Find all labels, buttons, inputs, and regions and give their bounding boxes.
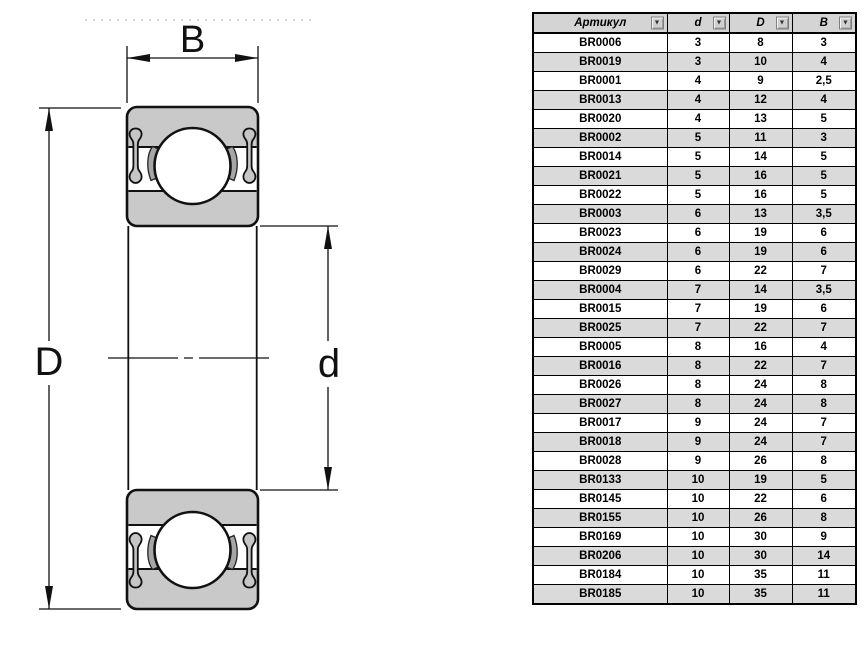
table-row: BR00157196 (533, 300, 856, 319)
arrowhead-right (235, 54, 258, 62)
table-row: BR00289268 (533, 452, 856, 471)
table-cell: 8 (792, 395, 856, 414)
column-header-label: d (694, 17, 701, 29)
table-cell: 8 (667, 357, 729, 376)
page: B D d Артик (0, 0, 868, 650)
table-cell: 26 (729, 452, 792, 471)
table-cell: BR0029 (533, 262, 667, 281)
table-cell: 24 (729, 376, 792, 395)
table-cell: BR0002 (533, 129, 667, 148)
table-cell: 7 (792, 414, 856, 433)
table-cell: 2,5 (792, 72, 856, 91)
table-row: BR00134124 (533, 91, 856, 110)
table-cell: BR0185 (533, 585, 667, 605)
table-cell: 5 (792, 110, 856, 129)
column-header-label: Артикул (574, 17, 626, 29)
bearing-drawing: B D d (0, 0, 530, 650)
column-header-label: D (756, 17, 764, 29)
table-cell: 5 (792, 148, 856, 167)
table-cell: BR0184 (533, 566, 667, 585)
table-cell: 3,5 (792, 205, 856, 224)
table-cell: BR0020 (533, 110, 667, 129)
table-cell: 30 (729, 528, 792, 547)
table-cell: 6 (667, 262, 729, 281)
table-row: BR016910309 (533, 528, 856, 547)
column-header-label: B (820, 17, 828, 29)
table-cell: BR0133 (533, 471, 667, 490)
column-header-d: d ▼ (667, 13, 729, 33)
bearing-section-top (127, 107, 258, 226)
table-cell: 8 (729, 33, 792, 53)
table-cell: BR0022 (533, 186, 667, 205)
table-cell: BR0014 (533, 148, 667, 167)
table-cell: BR0023 (533, 224, 667, 243)
table-row: BR00193104 (533, 53, 856, 72)
table-cell: 4 (667, 110, 729, 129)
table-cell: 11 (792, 566, 856, 585)
table-cell: 7 (792, 262, 856, 281)
table-cell: 10 (667, 490, 729, 509)
table-row: BR00215165 (533, 167, 856, 186)
header-row: Артикул ▼ d ▼ D ▼ B ▼ (533, 13, 856, 33)
table-cell: 9 (667, 433, 729, 452)
table-cell: 13 (729, 205, 792, 224)
table-row: BR013310195 (533, 471, 856, 490)
table-row: BR0006383 (533, 33, 856, 53)
table-cell: 26 (729, 509, 792, 528)
table-cell: 6 (667, 224, 729, 243)
table-cell: 6 (667, 243, 729, 262)
table-row: BR0001492,5 (533, 72, 856, 91)
table-row: BR00189247 (533, 433, 856, 452)
bearing-spec-table: Артикул ▼ d ▼ D ▼ B ▼ BR0006383BR0019310… (532, 12, 857, 605)
table-cell: BR0169 (533, 528, 667, 547)
arrowhead-up (45, 108, 53, 131)
table-body: BR0006383BR00193104BR0001492,5BR00134124… (533, 33, 856, 604)
table-cell: 24 (729, 433, 792, 452)
table-cell: 22 (729, 357, 792, 376)
table-cell: 14 (729, 281, 792, 300)
arrowhead-down (45, 586, 53, 609)
table-cell: 14 (729, 148, 792, 167)
table-cell: BR0013 (533, 91, 667, 110)
table-cell: 35 (729, 585, 792, 605)
table-cell: 10 (667, 585, 729, 605)
table-cell: 6 (792, 300, 856, 319)
table-cell: 8 (667, 395, 729, 414)
table-cell: 5 (667, 186, 729, 205)
column-header-B: B ▼ (792, 13, 856, 33)
table-cell: BR0015 (533, 300, 667, 319)
table-cell: BR0024 (533, 243, 667, 262)
table-cell: 10 (667, 509, 729, 528)
table-row: BR00145145 (533, 148, 856, 167)
table-cell: 6 (792, 224, 856, 243)
table-row: BR015510268 (533, 509, 856, 528)
table-cell: 19 (729, 243, 792, 262)
table-cell: 30 (729, 547, 792, 566)
table-cell: 12 (729, 91, 792, 110)
table-row: BR0206103014 (533, 547, 856, 566)
table-cell: BR0006 (533, 33, 667, 53)
table-row: BR00179247 (533, 414, 856, 433)
table-cell: 35 (729, 566, 792, 585)
table-cell: 6 (792, 490, 856, 509)
filter-dropdown-button-D[interactable]: ▼ (776, 17, 789, 30)
table-cell: BR0019 (533, 53, 667, 72)
table-cell: 4 (667, 91, 729, 110)
table-cell: 8 (667, 376, 729, 395)
table-cell: 8 (792, 376, 856, 395)
table-cell: 24 (729, 414, 792, 433)
arrowhead-down (324, 467, 332, 490)
table-cell: 16 (729, 338, 792, 357)
table-cell: BR0005 (533, 338, 667, 357)
table-cell: BR0025 (533, 319, 667, 338)
table-cell: 4 (792, 53, 856, 72)
column-header-D: D ▼ (729, 13, 792, 33)
table-row: BR00296227 (533, 262, 856, 281)
table-row: BR00036133,5 (533, 205, 856, 224)
table-row: BR00225165 (533, 186, 856, 205)
table-cell: 8 (792, 509, 856, 528)
table-cell: 7 (667, 300, 729, 319)
table-cell: BR0016 (533, 357, 667, 376)
table-row: BR00204135 (533, 110, 856, 129)
arrowhead-left (127, 54, 150, 62)
table-row: BR00278248 (533, 395, 856, 414)
table-cell: 16 (729, 186, 792, 205)
table-row: BR00058164 (533, 338, 856, 357)
table-cell: 19 (729, 224, 792, 243)
table-cell: 19 (729, 471, 792, 490)
table-cell: 5 (667, 129, 729, 148)
table-row: BR00236196 (533, 224, 856, 243)
table-cell: BR0021 (533, 167, 667, 186)
table-cell: 10 (667, 566, 729, 585)
table-cell: 5 (792, 167, 856, 186)
table-cell: 7 (667, 281, 729, 300)
table-cell: 11 (729, 129, 792, 148)
column-header-artikul: Артикул ▼ (533, 13, 667, 33)
table-cell: 7 (792, 357, 856, 376)
table-cell: BR0155 (533, 509, 667, 528)
dimension-label-D: D (35, 340, 64, 384)
table-cell: 9 (729, 72, 792, 91)
dimension-label-d: d (318, 342, 340, 386)
table-row: BR014510226 (533, 490, 856, 509)
table-cell: 3,5 (792, 281, 856, 300)
table-row: BR00047143,5 (533, 281, 856, 300)
table-row: BR00246196 (533, 243, 856, 262)
table-cell: 5 (792, 186, 856, 205)
table-cell: 22 (729, 490, 792, 509)
table-cell: BR0206 (533, 547, 667, 566)
table-cell: BR0018 (533, 433, 667, 452)
table-cell: BR0003 (533, 205, 667, 224)
table-cell: 11 (792, 585, 856, 605)
table-cell: 10 (729, 53, 792, 72)
filter-dropdown-button-B[interactable]: ▼ (839, 17, 852, 30)
table-cell: 4 (792, 338, 856, 357)
table-cell: 6 (667, 205, 729, 224)
table-cell: 10 (667, 547, 729, 566)
table-cell: 3 (792, 129, 856, 148)
filter-dropdown-button-d[interactable]: ▼ (713, 17, 726, 30)
table-cell: BR0026 (533, 376, 667, 395)
table-cell: 4 (792, 91, 856, 110)
table-cell: 3 (667, 53, 729, 72)
table-cell: 7 (792, 433, 856, 452)
arrowhead-up (324, 226, 332, 249)
table-cell: BR0145 (533, 490, 667, 509)
table-cell: 8 (792, 452, 856, 471)
table-cell: BR0001 (533, 72, 667, 91)
table-cell: 9 (792, 528, 856, 547)
filter-dropdown-button-artikul[interactable]: ▼ (651, 17, 664, 30)
table-cell: 14 (792, 547, 856, 566)
bearing-section-bottom (127, 490, 258, 609)
table-cell: 22 (729, 319, 792, 338)
table-row: BR00257227 (533, 319, 856, 338)
table-cell: BR0004 (533, 281, 667, 300)
table-cell: 5 (792, 471, 856, 490)
dimension-label-B: B (180, 19, 205, 61)
table-cell: 4 (667, 72, 729, 91)
table-cell: 13 (729, 110, 792, 129)
table-cell: 9 (667, 414, 729, 433)
table-row: BR0185103511 (533, 585, 856, 605)
table-cell: BR0017 (533, 414, 667, 433)
table-cell: 8 (667, 338, 729, 357)
table-cell: 7 (792, 319, 856, 338)
table-cell: 10 (667, 528, 729, 547)
table-row: BR00025113 (533, 129, 856, 148)
table-cell: 6 (792, 243, 856, 262)
table-cell: BR0027 (533, 395, 667, 414)
table-cell: 5 (667, 148, 729, 167)
table-cell: 16 (729, 167, 792, 186)
table-cell: 19 (729, 300, 792, 319)
table-row: BR0184103511 (533, 566, 856, 585)
table-cell: 24 (729, 395, 792, 414)
table-cell: 10 (667, 471, 729, 490)
table-cell: 3 (792, 33, 856, 53)
table-cell: 3 (667, 33, 729, 53)
table-cell: BR0028 (533, 452, 667, 471)
table-cell: 5 (667, 167, 729, 186)
table-row: BR00268248 (533, 376, 856, 395)
table-cell: 7 (667, 319, 729, 338)
table-row: BR00168227 (533, 357, 856, 376)
table-cell: 22 (729, 262, 792, 281)
table-cell: 9 (667, 452, 729, 471)
